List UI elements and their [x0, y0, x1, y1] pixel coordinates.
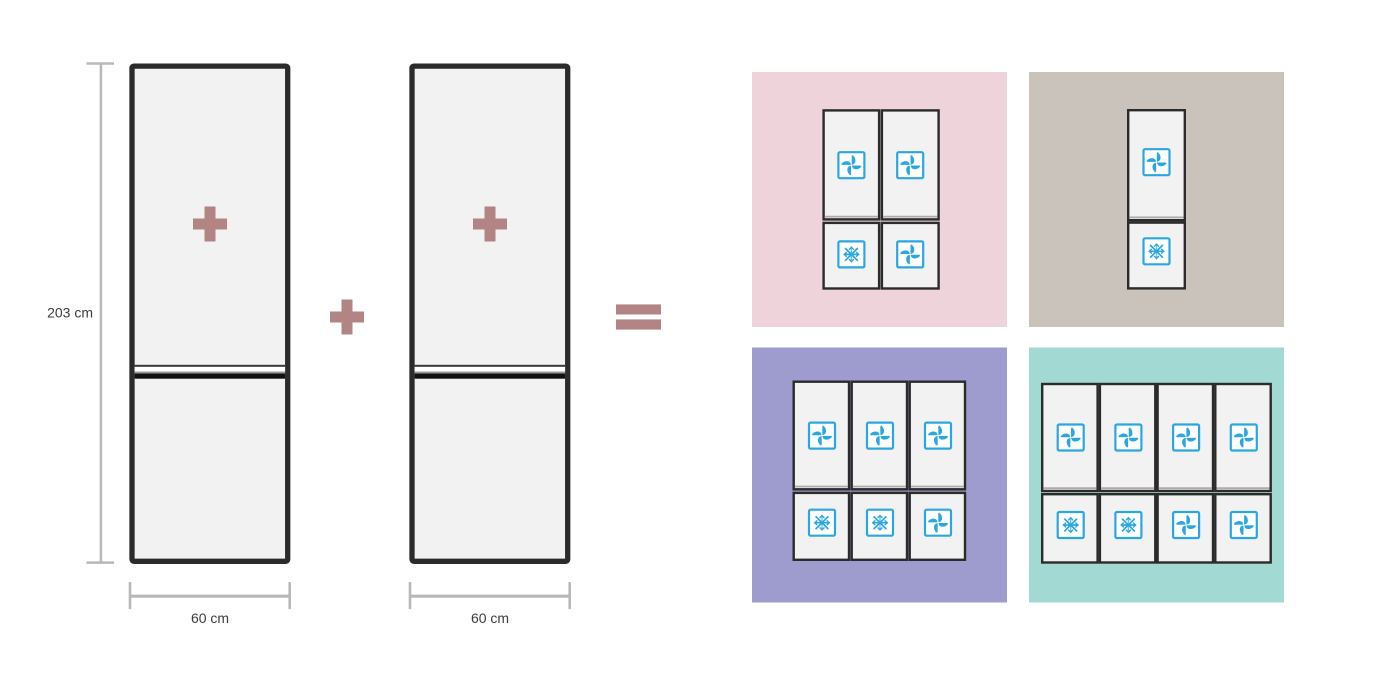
svg-text:60 cm: 60 cm — [191, 610, 229, 626]
svg-text:203 cm: 203 cm — [47, 305, 93, 321]
svg-text:60 cm: 60 cm — [471, 610, 509, 626]
